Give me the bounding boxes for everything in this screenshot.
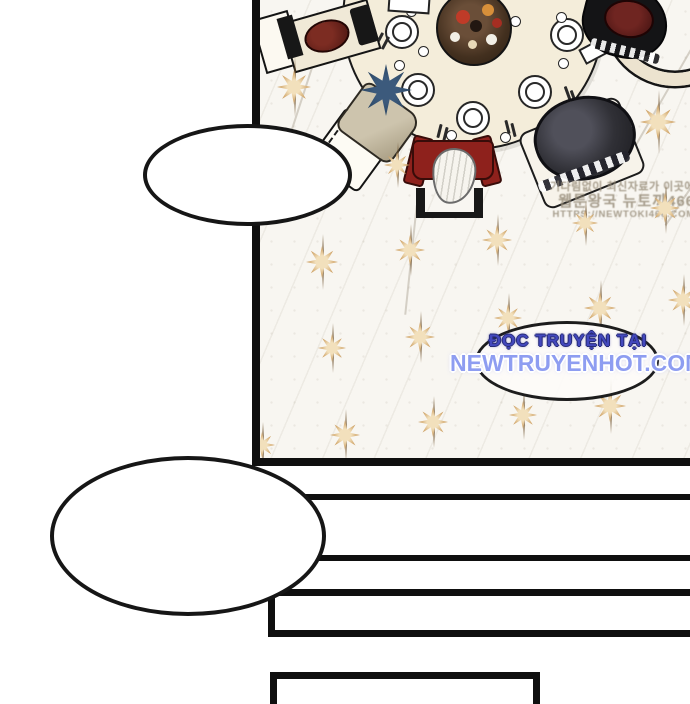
sparkle-star-icon: [650, 193, 680, 223]
small-dish: [394, 60, 405, 71]
sparkle-star-icon: [318, 334, 346, 362]
food-item: [492, 18, 502, 28]
small-dish: [556, 12, 567, 23]
food-item: [486, 34, 497, 45]
chair-bar: [416, 212, 483, 218]
bottom-panel: [270, 672, 540, 704]
comic-page: 기다림없이 최신자료가 이곳에 웹툰왕국 뉴토끼466 HTTPS://NEWT…: [0, 0, 690, 704]
food-item: [482, 4, 494, 16]
food-item: [450, 32, 460, 42]
small-dish: [418, 46, 429, 57]
sparkle-star-icon: [418, 407, 448, 437]
sparkle-star-icon: [330, 420, 360, 450]
food-item: [468, 40, 477, 49]
sparkle-star-icon: [572, 210, 598, 236]
sparkle-star-icon: [252, 432, 275, 458]
food-item: [470, 20, 482, 32]
panel-frame-2: [268, 589, 690, 637]
sparkle-star-icon: [482, 225, 512, 255]
speech-bubble-bottom: [50, 456, 326, 616]
sparkle-star-icon: [509, 401, 537, 429]
dinner-plate: [518, 75, 552, 109]
speech-bubble-top: [143, 124, 352, 226]
sparkle-star-icon: [395, 235, 425, 265]
main-panel: 기다림없이 최신자료가 이곳에 웹툰왕국 뉴토끼466 HTTPS://NEWT…: [252, 0, 690, 466]
sparkle-star-icon: [584, 292, 616, 324]
sparkle-star-icon: [668, 285, 690, 315]
sparkle-star-icon: [277, 70, 311, 104]
dinner-plate: [550, 18, 584, 52]
food-item: [456, 10, 470, 24]
sparkle-star-icon: [384, 152, 410, 178]
viet-watermark-line1: ĐỌC TRUYỆN TẠI: [488, 331, 648, 351]
sparkle-star-icon: [640, 104, 676, 140]
dinner-plate: [456, 101, 490, 135]
small-dish: [558, 58, 569, 69]
viet-watermark-line2: NEWTRUYENHOT.COM: [450, 350, 680, 377]
sparkle-star-icon: [306, 246, 338, 278]
panel-frame-1: [302, 494, 690, 561]
dinner-plate: [385, 15, 419, 49]
white-hair-figure: [430, 147, 478, 206]
sparkle-star-icon: [405, 322, 435, 352]
